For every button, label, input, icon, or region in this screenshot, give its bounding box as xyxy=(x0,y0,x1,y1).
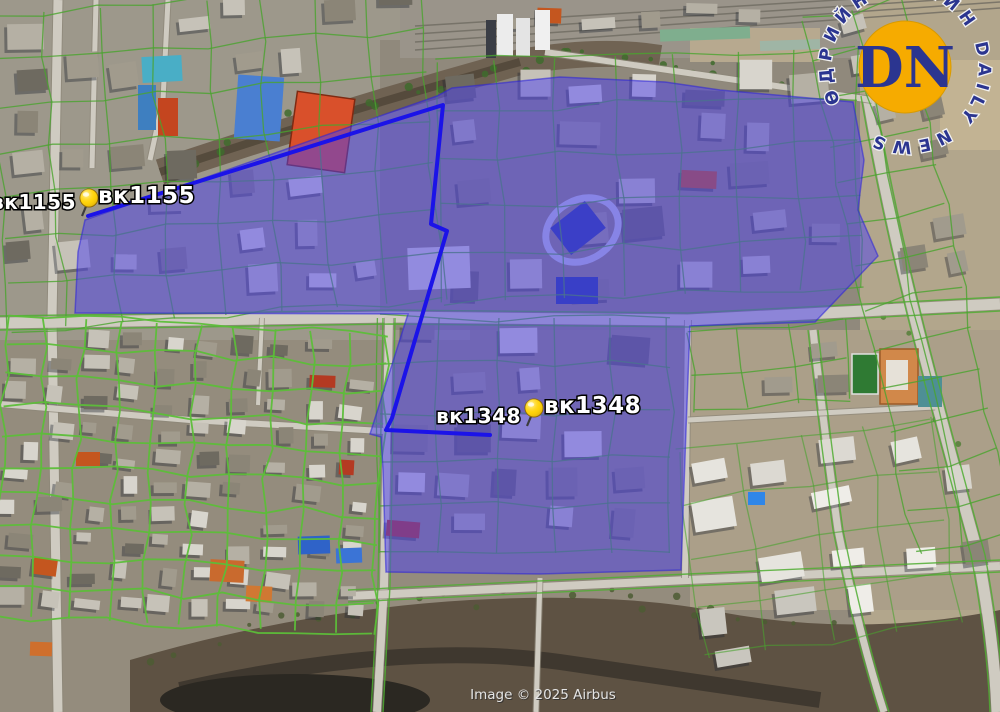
logo-monogram: DN xyxy=(855,35,955,101)
pin-label-vk1155-left: вк1155 xyxy=(0,190,76,214)
pin-label-vk1348-right: вк1348 xyxy=(544,393,641,419)
imagery-attribution: Image © 2025 Airbus xyxy=(470,687,616,703)
pin-label-vk1348-left: вк1348 xyxy=(436,404,521,428)
satellite-map-view[interactable]: вк1155 вк1155 вк1348 вк1348 ӨДРИЙН СОНИН… xyxy=(0,0,1000,712)
pin-label-vk1155-right: вк1155 xyxy=(98,183,195,209)
google-earth-viewport[interactable]: вк1155 вк1155 вк1348 вк1348 ӨДРИЙН СОНИН… xyxy=(0,0,1000,712)
